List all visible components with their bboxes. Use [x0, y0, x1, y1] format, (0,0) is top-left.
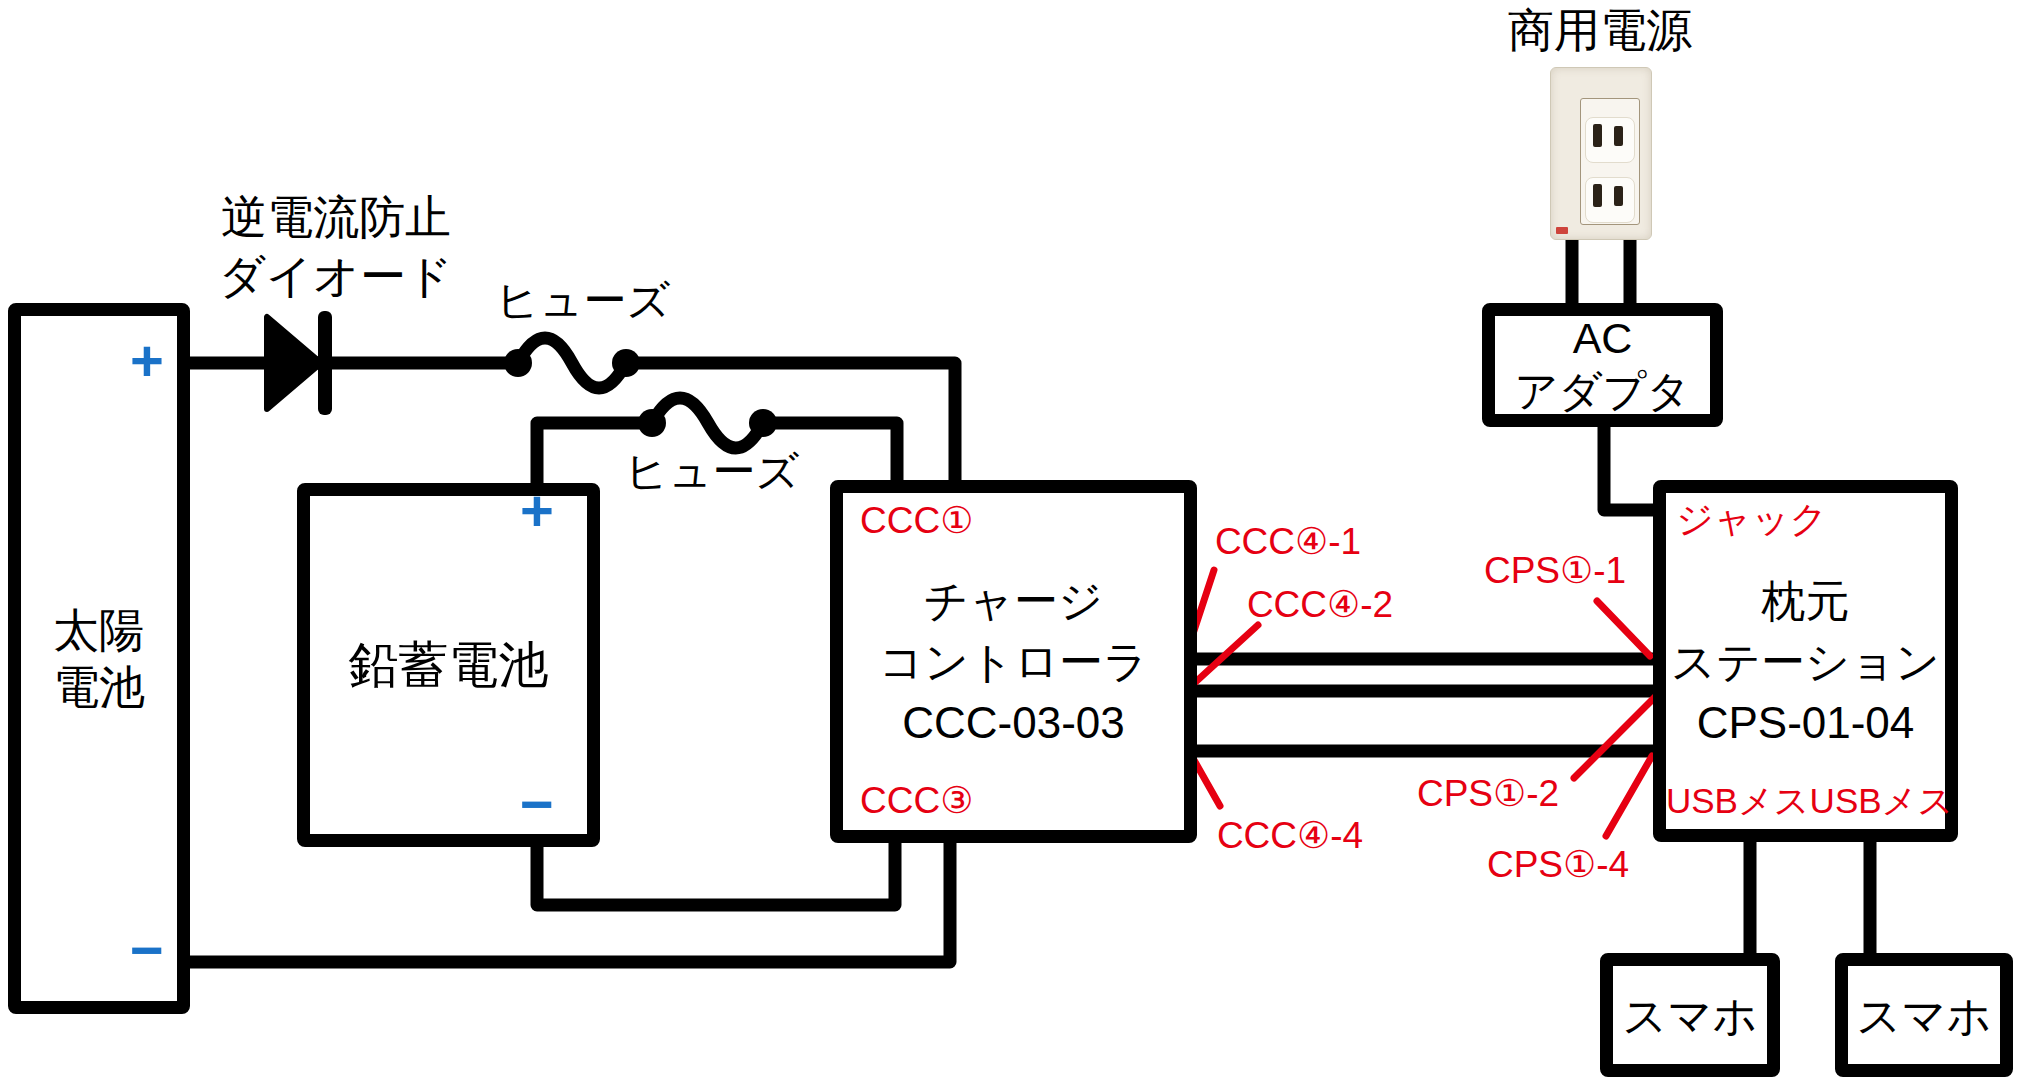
solar-battery-label-line1: 太陽 [53, 602, 145, 659]
outlet-slot-icon [1614, 126, 1623, 146]
fuse-terminal-dot [504, 349, 532, 377]
fuse-terminal-dot [638, 409, 666, 437]
lead-acid-battery-label: 鉛蓄電池 [349, 635, 549, 696]
ac-adapter-label-line1: AC [1514, 312, 1690, 365]
bedside-station-model: CPS-01-04 [1671, 692, 1940, 753]
terminal-label-ccc1: CCC① [860, 499, 973, 542]
annotation-cps1-4: CPS①-4 [1487, 843, 1629, 886]
diode-cathode-bar [318, 311, 332, 415]
outlet-photo [1550, 67, 1652, 240]
annotation-cps1-2: CPS①-2 [1417, 772, 1559, 815]
ac-adapter-box: AC アダプタ [1482, 303, 1723, 427]
solar-battery-label-line2: 電池 [53, 659, 145, 716]
jack-label: ジャック [1676, 495, 1827, 545]
battery-plus-symbol: + [520, 482, 554, 540]
diode-icon [267, 317, 321, 409]
fuse-terminal-dot [612, 349, 640, 377]
battery-minus-symbol: − [520, 775, 554, 833]
smartphone-box-left: スマホ [1600, 953, 1780, 1077]
charge-controller-box: CCC① チャージ コントローラ CCC-03-03 CCC③ [830, 480, 1197, 843]
usb-ports-label: USBメスUSBメス [1666, 778, 1945, 825]
smartphone-label: スマホ [1856, 985, 1991, 1046]
fuse-top-label: ヒューズ [495, 272, 670, 330]
smartphone-label: スマホ [1622, 985, 1757, 1046]
charge-controller-label-line2: コントローラ [879, 631, 1148, 692]
reverse-current-diode-label-line2: ダイオード [219, 247, 453, 306]
bedside-station-label-line2: ステーション [1671, 631, 1940, 692]
fuse-battery-label: ヒューズ [624, 443, 799, 501]
solar-minus-symbol: − [130, 921, 164, 979]
circuit-diagram: 太陽 電池 鉛蓄電池 CCC① チャージ コントローラ CCC-03-03 CC… [0, 0, 2017, 1079]
annotation-ccc4-4: CCC④-4 [1217, 814, 1363, 857]
smartphone-box-right: スマホ [1835, 953, 2013, 1077]
pointer-line-cps1-4 [1606, 756, 1652, 836]
ac-adapter-label-line2: アダプタ [1514, 365, 1690, 418]
reverse-current-diode-label: 逆電流防止 ダイオード [219, 188, 453, 306]
lead-acid-battery-box: 鉛蓄電池 [297, 483, 600, 847]
outlet-brand-mark [1556, 227, 1568, 234]
annotation-ccc4-1: CCC④-1 [1215, 520, 1361, 563]
fuse-terminal-dot [749, 409, 777, 437]
charge-controller-model: CCC-03-03 [879, 692, 1148, 753]
charge-controller-label-line1: チャージ [879, 570, 1148, 631]
bedside-station-box: ジャック 枕元 ステーション CPS-01-04 USBメスUSBメス [1653, 480, 1958, 842]
outlet-socket-module [1580, 98, 1640, 225]
fuse-top-wave-icon [518, 338, 626, 388]
outlet-slot-icon [1593, 184, 1602, 207]
annotation-cps1-1: CPS①-1 [1484, 549, 1626, 592]
outlet-slot-icon [1593, 124, 1602, 147]
solar-battery-box: 太陽 電池 [8, 303, 190, 1014]
solar-plus-symbol: + [130, 332, 164, 390]
reverse-current-diode-label-line1: 逆電流防止 [219, 188, 453, 247]
commercial-power-label: 商用電源 [1508, 0, 1692, 62]
outlet-slot-icon [1614, 186, 1623, 206]
adapter-output-wire [1604, 424, 1658, 510]
pointer-line-cps1-1 [1597, 601, 1650, 656]
fuse-battery-wave-icon [652, 398, 763, 448]
annotation-ccc4-2: CCC④-2 [1247, 583, 1393, 626]
bedside-station-label-line1: 枕元 [1671, 570, 1940, 631]
terminal-label-ccc3: CCC③ [860, 779, 973, 822]
